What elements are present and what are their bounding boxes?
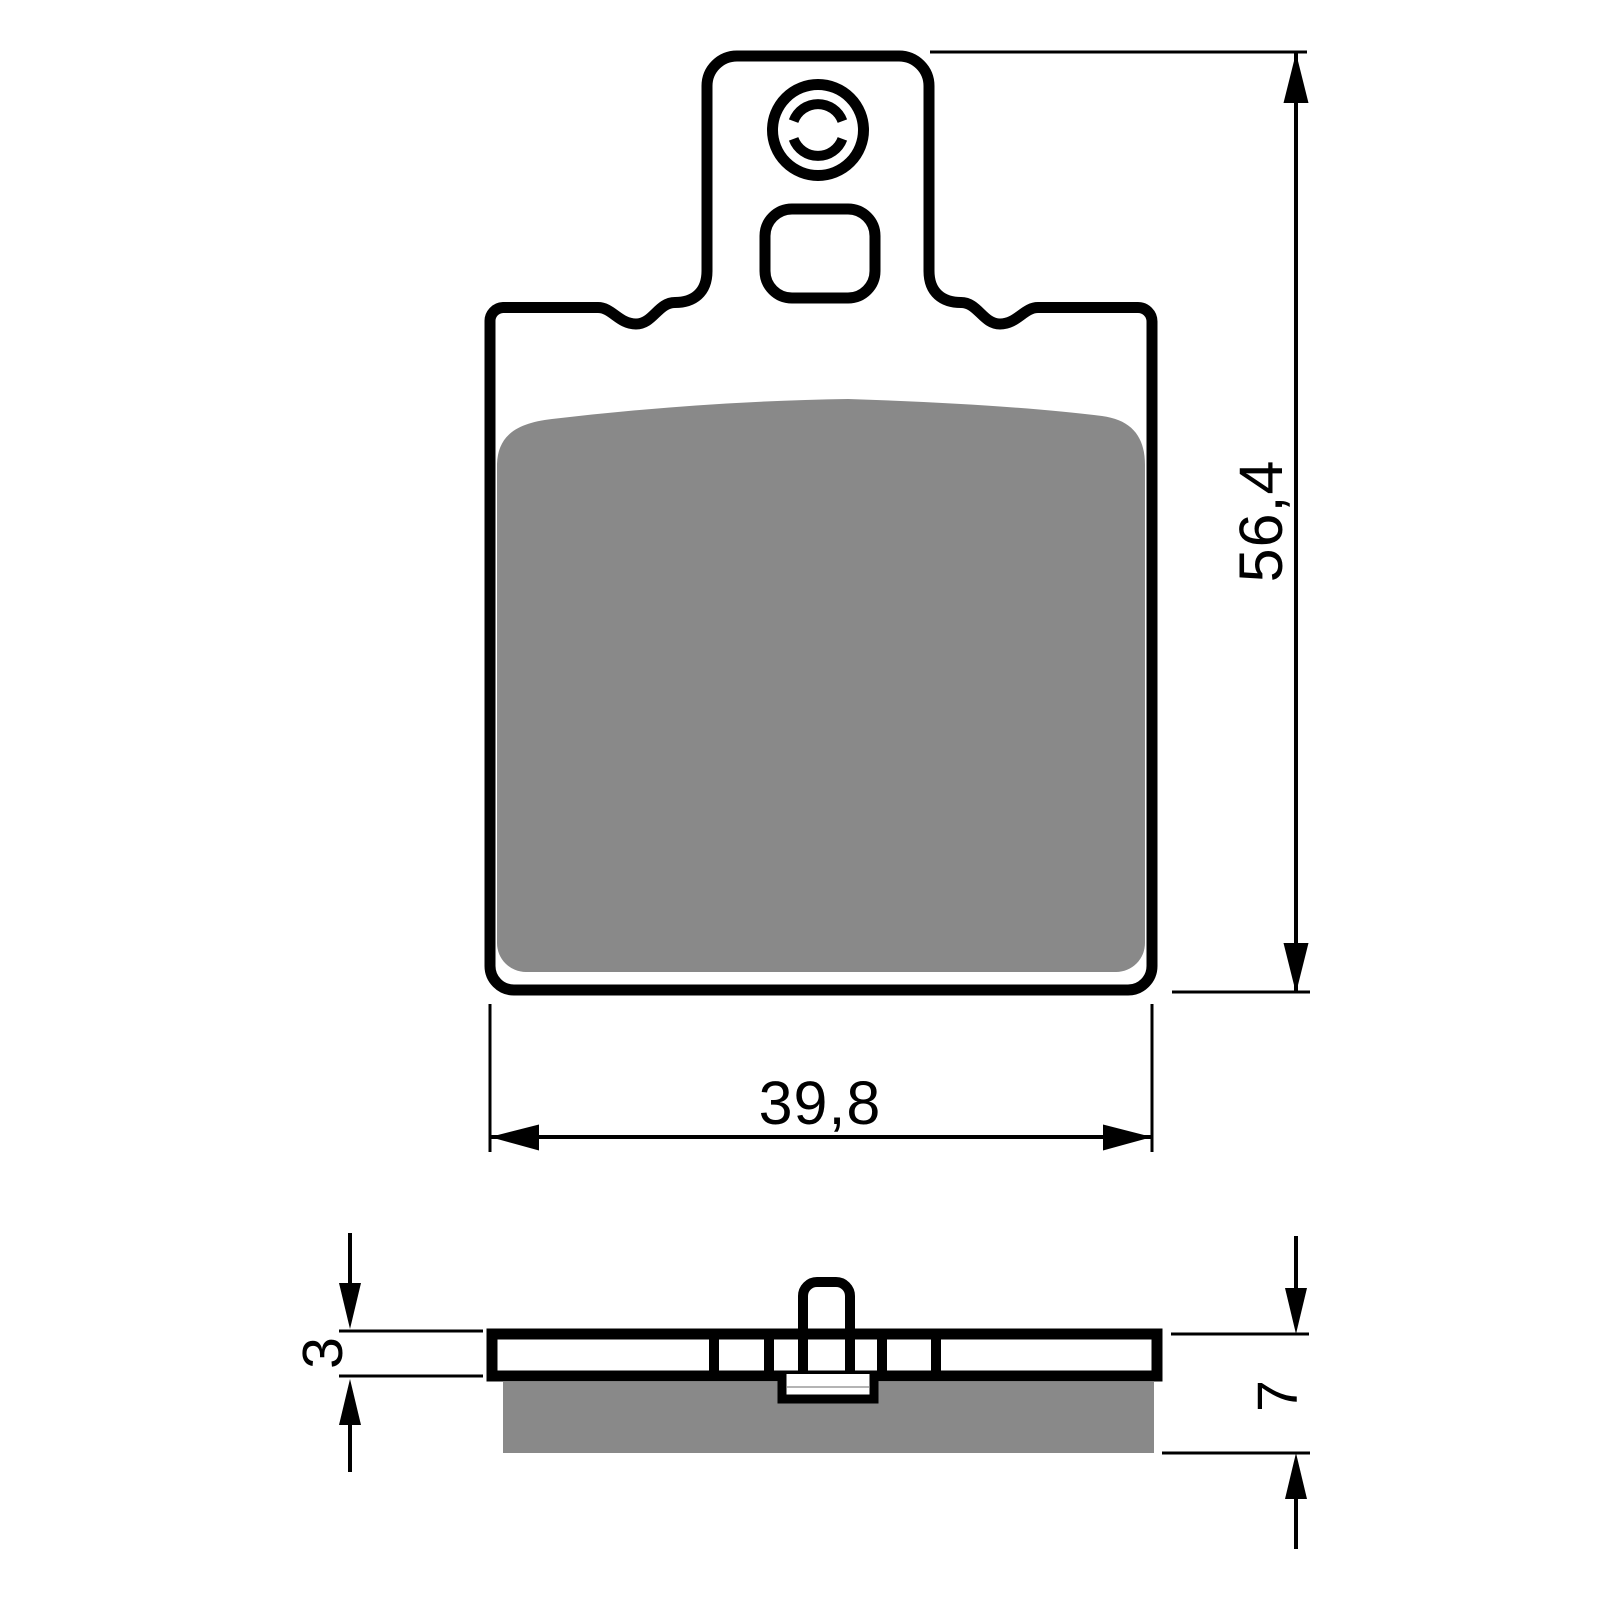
svg-text:3: 3 [291, 1337, 355, 1369]
svg-text:7: 7 [1246, 1380, 1310, 1412]
svg-text:39,8: 39,8 [759, 1069, 882, 1137]
svg-text:56,4: 56,4 [1227, 460, 1295, 583]
